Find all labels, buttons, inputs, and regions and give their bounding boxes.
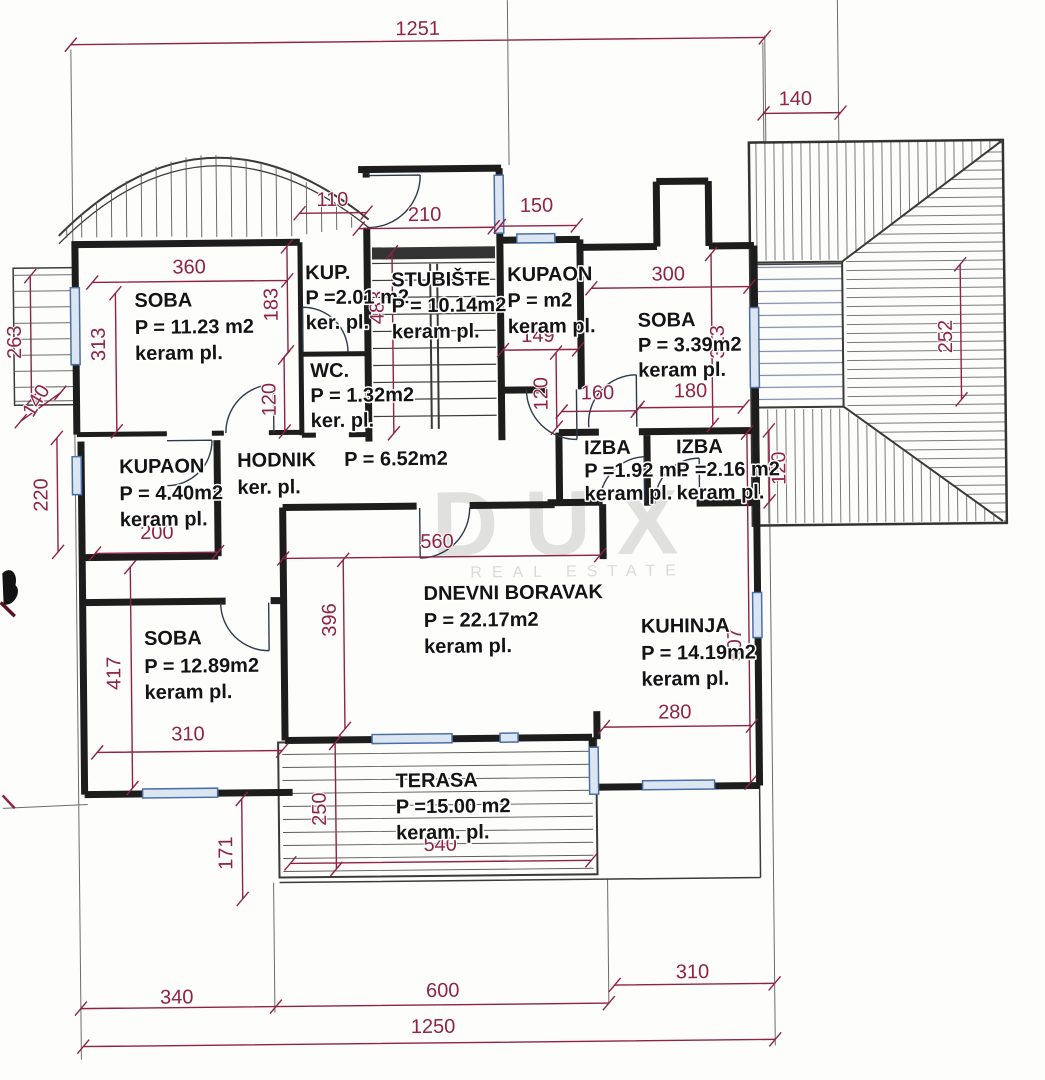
dim-soba1-w: 360 — [172, 256, 206, 278]
room-izba2-area: P =2.16 m2 — [676, 458, 780, 481]
dim-kupaon-left-h: 220 — [30, 478, 52, 512]
room-kupaon-left-floor: keram pl. — [120, 508, 208, 531]
dim-dnevni-h: 396 — [319, 603, 341, 637]
scan-artifacts — [0, 570, 20, 808]
room-izba1-floor: keram pl. — [584, 482, 672, 505]
room-kuhinja-area: P = 14.19m2 — [641, 642, 756, 665]
room-kupaon-left-name: KUPAON — [119, 455, 204, 478]
room-kupaon-left-area: P = 4.40m2 — [119, 482, 223, 505]
dim-kup-h: 183 — [260, 288, 282, 322]
dim-soba3-w: 310 — [171, 723, 205, 745]
room-terasa-area: P =15.00 m2 — [396, 795, 511, 818]
room-terasa-name: TERASA — [395, 769, 477, 792]
dim-bottom-left: 340 — [160, 986, 194, 1008]
dim-dnevni-w: 560 — [420, 531, 454, 553]
dim-bottom-right: 310 — [676, 961, 710, 983]
dim-kuhinja-w: 280 — [658, 701, 692, 723]
room-hodnik-floor: ker. pl. — [237, 476, 301, 499]
floorplan-page: DUX REAL ESTATE — [0, 0, 1045, 1080]
dim-hall-160: 160 — [581, 382, 615, 404]
room-kuhinja-floor: keram pl. — [641, 668, 729, 691]
room-soba2-floor: keram pl. — [638, 359, 726, 382]
room-soba1-area: P = 11.23 m2 — [135, 316, 254, 339]
floorplan-drawing: DUX REAL ESTATE — [0, 0, 1045, 1080]
room-stubiste-floor: keram pl. — [392, 320, 480, 343]
room-kup-floor: ker. pl. — [306, 312, 370, 335]
dim-soba3-h: 417 — [103, 656, 125, 690]
room-hodnik-name: HODNIK — [237, 449, 317, 472]
room-izba1-name: IZBA — [584, 437, 631, 459]
room-soba2-area: P = 3.39m2 — [638, 334, 742, 357]
room-dnevni-floor: keram pl. — [424, 635, 512, 658]
dim-terasa-h: 250 — [309, 792, 331, 826]
room-kup-name: KUP. — [305, 262, 350, 284]
dim-stubiste-top: 210 — [408, 204, 442, 226]
dim-total-top: 1251 — [395, 18, 440, 40]
room-wc-area: P = 1.32m2 — [310, 384, 414, 407]
room-izba1-area: P =1.92 m2 — [584, 459, 688, 482]
dim-bottom-mid: 600 — [426, 980, 460, 1002]
room-soba1-name: SOBA — [134, 289, 192, 312]
room-wc-name: WC. — [310, 360, 349, 382]
room-stubiste-name: STUBIŠTE — [391, 266, 490, 291]
dim-kup-top: 110 — [316, 189, 348, 211]
room-soba2-name: SOBA — [638, 309, 696, 332]
room-izba2-name: IZBA — [676, 436, 723, 458]
room-soba3-area: P = 12.89m2 — [144, 655, 259, 678]
dim-kupaon-top-w: 150 — [520, 195, 554, 217]
dim-soba1-h: 313 — [88, 328, 110, 362]
room-soba3-name: SOBA — [144, 627, 202, 650]
dim-balcony-side: 263 — [4, 325, 26, 359]
room-stubiste-area: P = 10.14m2 — [391, 294, 506, 317]
room-terasa-floor: keram. pl. — [396, 821, 490, 844]
dim-kupaon-door: 120 — [530, 377, 552, 411]
room-soba1-floor: keram pl. — [135, 342, 223, 365]
dim-roof-top: 140 — [779, 88, 813, 110]
room-kuhinja-name: KUHINJA — [641, 615, 730, 638]
room-soba3-floor: keram pl. — [144, 681, 232, 704]
dim-soba2-w: 300 — [651, 263, 685, 285]
room-dnevni-area: P = 22.17m2 — [424, 609, 539, 632]
room-kupaon-top-area: P = m2 — [507, 289, 572, 312]
room-izba2-floor: keram pl. — [676, 481, 764, 504]
dim-terasa-step: 171 — [215, 836, 237, 870]
room-wc-floor: ker. pl. — [311, 410, 375, 433]
dim-total-bottom: 1250 — [411, 1016, 456, 1038]
dim-roof-h: 252 — [935, 320, 957, 354]
watermark-tagline: REAL ESTATE — [470, 562, 686, 581]
room-kupaon-top-floor: keram pl. — [508, 315, 596, 338]
room-kupaon-top-name: KUPAON — [507, 263, 592, 286]
dim-wc-h: 120 — [258, 383, 280, 417]
room-dnevni-name: DNEVNI BORAVAK — [423, 581, 603, 605]
dim-hall-180: 180 — [674, 380, 708, 402]
room-hodnik-area: P = 6.52m2 — [344, 448, 448, 471]
